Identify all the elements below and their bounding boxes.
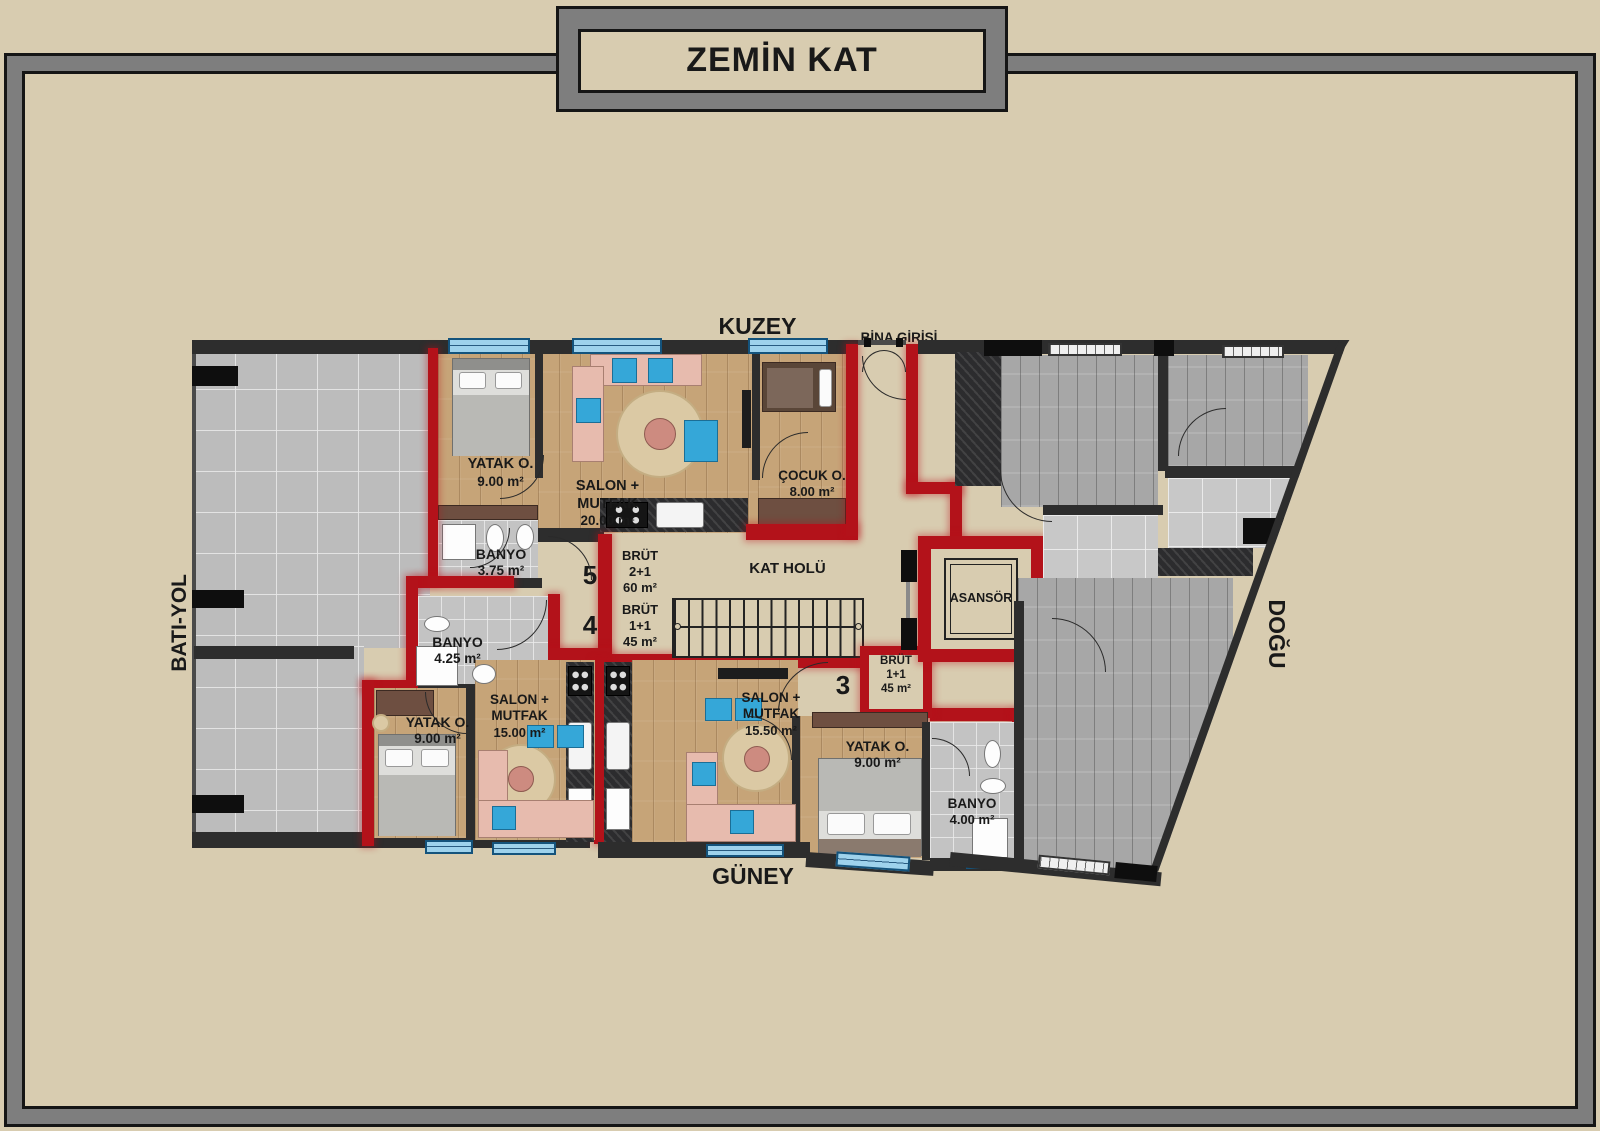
unit5-salon-child-wall	[752, 348, 760, 480]
room-area: 4.00 m²	[932, 812, 1012, 828]
staircase	[672, 598, 864, 658]
unit5-sofa-top	[590, 354, 702, 386]
title-box: ZEMİN KAT	[556, 6, 1008, 112]
unit4-number: 4	[575, 610, 605, 642]
terrace-top-wall	[192, 340, 438, 354]
east-room-wall	[1043, 505, 1163, 515]
unit5-tv	[742, 390, 751, 448]
unit5-salon-label: SALON + MUTFAK 20.00 m²	[545, 478, 670, 530]
unit3-number: 3	[828, 670, 858, 702]
room-area: 3.75 m²	[455, 563, 547, 579]
wall-pier	[1154, 340, 1174, 356]
window	[492, 842, 556, 855]
page-title: ZEMİN KAT	[686, 40, 878, 81]
room-area: 9.00 m²	[825, 755, 930, 771]
compass-south-label: GÜNEY	[688, 862, 818, 890]
unit5-bedroom-wardrobe	[438, 505, 538, 520]
unit5-armchair	[684, 420, 718, 462]
unit4-cushion	[492, 806, 516, 830]
compass-west-label: BATI-YOL	[167, 563, 193, 683]
wall-pier	[984, 340, 1042, 356]
room-name: YATAK O.	[448, 456, 553, 474]
east-dark-marble-band	[955, 352, 1001, 486]
unit4-brut-label: BRÜT 1+1 45 m²	[608, 602, 672, 650]
east-dark-marble-band	[1158, 548, 1253, 576]
unit5-bottom-red-wall	[746, 524, 858, 540]
room-name: SALON + MUTFAK	[462, 692, 577, 725]
room-name: SALON + MUTFAK	[712, 690, 830, 723]
room-area: 4.25 m²	[410, 651, 505, 667]
unit3-fridge	[606, 788, 630, 830]
terrace-mid-wall	[194, 646, 354, 659]
unit3-cushion	[692, 762, 716, 786]
unit3-cushion	[730, 810, 754, 834]
unit4-bath-label: BANYO 4.25 m²	[410, 634, 505, 668]
room-area: 20.00 m²	[545, 513, 670, 529]
room-area: 8.00 m²	[762, 484, 862, 500]
entrance-corridor-left-red-wall	[846, 344, 858, 536]
staircase-end-mark	[855, 623, 862, 630]
staircase-midline	[676, 626, 860, 628]
unit5-child-room-label: ÇOCUK O. 8.00 m²	[762, 468, 862, 500]
window	[706, 844, 784, 857]
window	[425, 840, 473, 854]
east-room-wall	[1014, 601, 1024, 872]
unit5-cushion	[612, 358, 637, 383]
east-room-wall	[1165, 466, 1310, 478]
unit5-brut-label: BRÜT 2+1 60 m²	[608, 548, 672, 596]
unit3-tv	[718, 668, 788, 679]
unit3-bath-label: BANYO 4.00 m²	[932, 796, 1012, 828]
unit3-bedroom-label: YATAK O. 9.00 m²	[825, 738, 930, 772]
room-name: ÇOCUK O.	[762, 468, 862, 484]
wall-pier	[192, 795, 244, 813]
window	[1048, 343, 1122, 356]
window	[1222, 345, 1284, 358]
room-name: YATAK O.	[825, 738, 930, 755]
unit5-brut-type: 2+1	[608, 564, 672, 580]
room-area: 15.00 m²	[462, 725, 577, 741]
compass-east-label: DOĞU	[1263, 574, 1291, 694]
unit5-bed	[452, 358, 530, 456]
unit4-coffee-table	[508, 766, 534, 792]
room-area: 9.00 m²	[448, 474, 553, 490]
east-room-wall	[1158, 355, 1168, 471]
unit5-bath-label: BANYO 3.75 m²	[455, 546, 547, 580]
room-area: 15.50 m²	[712, 723, 830, 739]
unit3-bed	[818, 758, 922, 856]
unit3-kitchen-sink	[606, 722, 630, 770]
unit4-brut-area: 45 m²	[608, 634, 672, 650]
title-box-inner: ZEMİN KAT	[578, 29, 986, 93]
unit4-brut-title: BRÜT	[608, 602, 672, 618]
floor-plan-page: ZEMİN KAT KUZEY GÜNEY BATI-YOL DOĞU BİNA…	[0, 0, 1600, 1131]
unit5-child-bed	[762, 362, 836, 412]
wall-pier	[192, 590, 244, 608]
unit5-cushion	[648, 358, 673, 383]
door-hinge	[896, 338, 903, 347]
window	[748, 338, 828, 354]
elevator-door-pier	[901, 618, 917, 650]
room-name: BANYO	[410, 634, 505, 651]
unit5-coffee-table	[644, 418, 676, 450]
unit4-left-red-wall	[362, 680, 374, 846]
unit4-brut-type: 1+1	[608, 618, 672, 634]
unit4-unit3-red-wall	[594, 660, 604, 844]
hall-label: KAT HOLÜ	[725, 560, 850, 578]
unit5-cushion	[576, 398, 601, 423]
wall-pier	[192, 366, 238, 386]
unit4-bed	[378, 734, 456, 836]
staircase-start-mark	[674, 623, 681, 630]
room-name: SALON + MUTFAK	[545, 478, 670, 513]
window	[572, 338, 662, 354]
unit3-salon-label: SALON + MUTFAK 15.50 m²	[712, 690, 830, 739]
unit5-brut-area: 60 m²	[608, 580, 672, 596]
elevator-door-pier	[901, 550, 917, 582]
entrance-corridor-right-red-wall	[906, 344, 918, 494]
elevator-door	[906, 582, 910, 618]
unit4-salon-label: SALON + MUTFAK 15.00 m²	[462, 692, 577, 741]
unit5-bedroom-label: YATAK O. 9.00 m²	[448, 456, 553, 490]
room-name: BANYO	[455, 546, 547, 563]
unit5-brut-title: BRÜT	[608, 548, 672, 564]
room-name: BANYO	[932, 796, 1012, 812]
door-hinge	[864, 338, 871, 347]
unit5-left-red-wall	[428, 348, 438, 584]
compass-north-label: KUZEY	[690, 312, 825, 340]
unit4-toilet	[424, 616, 450, 632]
window	[448, 338, 530, 354]
unit3-stove	[606, 666, 630, 696]
